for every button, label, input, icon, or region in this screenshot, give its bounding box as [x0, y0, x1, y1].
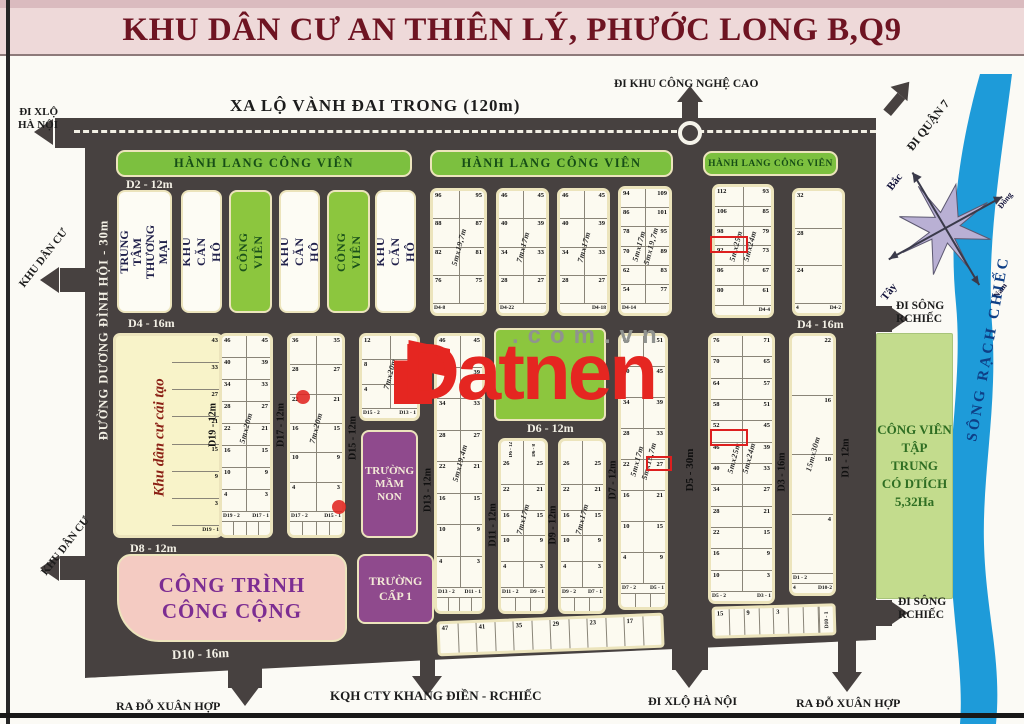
- pn: 10: [561, 536, 572, 546]
- plot-block-mb4: 464540393433282722211615109435mx19,4mD13…: [434, 333, 485, 614]
- pfl: D17 - 2: [290, 512, 309, 521]
- pn: 39: [655, 398, 666, 408]
- prow: 3433: [222, 379, 270, 401]
- prow: 86101: [621, 207, 669, 226]
- pn: 4: [561, 562, 568, 572]
- pn: 34: [437, 399, 448, 409]
- pcell: [516, 598, 531, 611]
- pn: 39: [762, 443, 773, 453]
- pn: 94: [621, 189, 632, 199]
- pfr: D17 - 1: [251, 512, 270, 521]
- hcell: 9: [744, 608, 760, 634]
- south-exit-stub-d1: [838, 636, 856, 674]
- pn: 85: [761, 207, 772, 217]
- prow: 9695: [433, 191, 484, 218]
- public-works-label: CÔNG TRÌNH CÔNG CỘNG: [159, 572, 306, 624]
- pfl: 4: [795, 304, 800, 313]
- pn: 4: [826, 515, 833, 525]
- pn: 3: [596, 562, 603, 572]
- pfr: [667, 304, 669, 313]
- duong-dinh-hoi-label: ĐƯỜNG DƯƠNG ĐÌNH HỘI - 30m: [97, 220, 112, 441]
- prow: 1015: [621, 521, 665, 552]
- psub: [501, 597, 545, 611]
- hcell: [804, 607, 820, 633]
- pn: 36: [290, 336, 301, 346]
- pcell: [621, 594, 636, 607]
- pn: 46: [222, 336, 233, 346]
- district7-arrow-icon: [881, 91, 909, 119]
- pn: [413, 360, 417, 362]
- pn: 40: [711, 464, 722, 474]
- hcell: 35: [513, 621, 533, 651]
- pn: 28: [222, 402, 233, 412]
- red-highlight-plot-1: [710, 236, 748, 253]
- park-corridor-3: HÀNH LANG CÔNG VIÊN: [703, 151, 838, 176]
- pfl: [715, 306, 717, 315]
- hn: 3: [776, 609, 779, 616]
- plot-block-mb5: D6 - 12D6 - 8262522211615109437mx17mD11 …: [498, 438, 548, 614]
- pn: 78: [621, 227, 632, 237]
- prow: 4045: [621, 366, 665, 397]
- prow: 8667: [715, 265, 771, 285]
- pn: 28: [499, 276, 510, 286]
- pn: 22: [501, 485, 512, 495]
- prow: 4039: [222, 357, 270, 379]
- pn: 9: [538, 536, 545, 546]
- prow: 43: [222, 489, 270, 511]
- pn: 21: [535, 485, 546, 495]
- pn: 28: [290, 365, 301, 375]
- pfl: D19 - 2: [222, 512, 241, 521]
- east-exit-stub-upper: [876, 306, 892, 332]
- pn: [838, 266, 842, 268]
- prow: 4651: [621, 336, 665, 366]
- pn: 16: [501, 511, 512, 521]
- south-exit-stub-d5: [672, 646, 708, 670]
- south-exit-stub-d13: [420, 658, 435, 678]
- pn: 61: [761, 286, 772, 296]
- pn: 28: [795, 229, 806, 239]
- pn: 40: [560, 219, 571, 229]
- pn: 45: [655, 367, 666, 377]
- prow: 4645: [560, 191, 607, 218]
- pn: 109: [655, 189, 669, 199]
- pn: 28: [621, 429, 632, 439]
- park-label: CÔNG VIÊN: [334, 232, 364, 272]
- prow: 22: [792, 336, 833, 395]
- pfoot: D4-18: [560, 303, 607, 313]
- pn: 87: [474, 219, 485, 229]
- renovation-area-label-wrap: Khu dân cư cải tạo: [130, 345, 190, 530]
- prow: 8061: [715, 285, 771, 305]
- red-highlight-plot-2: [710, 429, 748, 446]
- road-d15-label: D15 - 12m: [348, 416, 359, 460]
- prow: 109: [222, 467, 270, 489]
- ring-road-west-end: [55, 118, 87, 148]
- pn: 76: [433, 276, 444, 286]
- pn: 46: [437, 336, 448, 346]
- road-d11-label: D11 - 12m: [488, 503, 499, 546]
- pn: 15: [260, 446, 271, 456]
- pfoot: 4D10-2: [792, 583, 833, 593]
- hcell: [759, 608, 775, 634]
- pn: 16: [561, 511, 572, 521]
- pn: 33: [597, 248, 608, 258]
- primary-school-block: TRƯỜNG CẤP 1: [357, 554, 434, 624]
- hcell: 17: [624, 616, 644, 646]
- hcell: [789, 607, 805, 633]
- pn: [413, 336, 417, 338]
- park-block-1: CÔNG VIÊN: [229, 190, 272, 313]
- pn: 46: [499, 191, 510, 201]
- pn: 9: [475, 525, 482, 535]
- pfoot: D1 - 2: [792, 573, 833, 583]
- pn: 96: [433, 191, 444, 201]
- pn: 80: [715, 286, 726, 296]
- pfl: D7 - 2: [621, 584, 637, 593]
- plot-block-mb6: 262522211615109437mx17mD9 - 2D7 - 1: [558, 438, 606, 614]
- pn: 62: [621, 266, 632, 276]
- prow: 6283: [621, 265, 669, 284]
- pn: 71: [762, 336, 773, 346]
- ptoprow: D6 - 12D6 - 8: [501, 441, 545, 459]
- pcell: [259, 522, 270, 535]
- hcell: [532, 620, 552, 650]
- ring-road-dashed-line: [74, 130, 876, 133]
- pcell: [531, 598, 545, 611]
- pn: 45: [597, 191, 608, 201]
- pn: 16: [823, 396, 834, 406]
- pn: 45: [260, 336, 271, 346]
- pcell: [437, 598, 449, 611]
- pcell: [317, 522, 330, 535]
- pn: 39: [472, 368, 483, 378]
- apartment-label: KHU CĂN HỘ: [375, 233, 416, 270]
- psub: [561, 597, 603, 611]
- pn: 8: [362, 360, 369, 370]
- plot-block-mb8: 7671706564575851524546394033342728212215…: [708, 333, 775, 604]
- pn: 40: [437, 368, 448, 378]
- kindergarten-block: TRƯỜNG MẦM NON: [361, 430, 418, 538]
- pn: 10: [823, 455, 834, 465]
- prow: 109: [290, 452, 342, 481]
- park-corridor-1: HÀNH LANG CÔNG VIÊN: [116, 150, 412, 177]
- vtx: D6 - 12: [509, 442, 514, 457]
- plot-block-mb1: 464540393433282722211615109435mx20mD19 -…: [219, 333, 273, 538]
- pn: 27: [472, 431, 483, 441]
- pn: 27: [536, 276, 547, 286]
- park-block-2: CÔNG VIÊN: [327, 190, 370, 313]
- hn: 15: [717, 610, 724, 617]
- pn: 95: [474, 191, 485, 201]
- pfoot: D15 - 2D13 - 1: [362, 408, 417, 418]
- pbody: 7671706564575851524546394033342728212215…: [711, 336, 772, 591]
- pn: 9: [658, 553, 665, 563]
- pn: 89: [659, 247, 670, 257]
- hn: 47: [442, 625, 449, 632]
- hcell: 41: [476, 622, 496, 652]
- pfr: [544, 304, 546, 313]
- pn: 22: [437, 462, 448, 472]
- hcell: [458, 623, 478, 653]
- apartment-label: KHU CĂN HỘ: [279, 233, 320, 270]
- pfl: D15 - 2: [362, 409, 381, 418]
- pn: 21: [593, 485, 604, 495]
- pcell: [575, 598, 589, 611]
- red-highlight-plot-3: [646, 456, 672, 471]
- pn: 45: [536, 191, 547, 201]
- exit-rach-chiec-lower-label: ĐI SÔNG RCHIẾC: [898, 596, 946, 622]
- prow: 11293: [715, 187, 771, 206]
- pn: 101: [655, 208, 669, 218]
- pn: 34: [499, 248, 510, 258]
- exit-hi-tech-label: ĐI KHU CÔNG NGHỆ CAO: [614, 78, 758, 90]
- frame-bottom-line: [0, 713, 1024, 718]
- pn: 10: [222, 468, 233, 478]
- pn: 9: [263, 468, 270, 478]
- road-d17-label: D17 - 12m: [276, 403, 287, 447]
- pn: 15: [593, 511, 604, 521]
- pn: 15: [332, 424, 343, 434]
- pn: 9: [596, 536, 603, 546]
- pn: [838, 229, 842, 231]
- hcell: [606, 617, 626, 647]
- pn: 64: [711, 379, 722, 389]
- pn: 21: [655, 491, 666, 501]
- pcell: [561, 598, 575, 611]
- prow: 2215: [711, 527, 772, 548]
- arrow-down-left-icon: [230, 686, 260, 706]
- ring-road-label: XA LỘ VÀNH ĐAI TRONG (120m): [230, 96, 520, 116]
- kindergarten-label: TRƯỜNG MẦM NON: [365, 465, 414, 504]
- prow: 94109: [621, 189, 669, 207]
- pfr: D5 - 1: [649, 584, 665, 593]
- pn: 40: [222, 358, 233, 368]
- pn: 33: [472, 399, 483, 409]
- pcell: [303, 522, 316, 535]
- pfoot: D7 - 2D5 - 1: [621, 583, 665, 593]
- pn: 33: [536, 248, 547, 258]
- arrow-down-d1-icon: [832, 672, 862, 692]
- pfoot: D19 - 2D17 - 1: [222, 511, 270, 521]
- pn: 16: [621, 491, 632, 501]
- prow: 4645: [437, 336, 482, 367]
- prow: 12: [362, 336, 417, 359]
- pn: 15: [655, 522, 666, 532]
- pn: 26: [561, 459, 572, 469]
- pn: 4: [290, 483, 297, 493]
- hcell: 3: [774, 608, 790, 634]
- pfoot: D13 - 2D11 - 1: [437, 587, 482, 597]
- pcell: [636, 594, 651, 607]
- pn: 3: [475, 557, 482, 567]
- red-marker-dot-2: [332, 500, 346, 514]
- prow: 1615: [437, 493, 482, 525]
- hn: 9: [746, 610, 749, 617]
- exit-khang-dien-label: KQH CTY KHANG ĐIỀN - RCHIẾC: [330, 688, 542, 704]
- title-bar: KHU DÂN CƯ AN THIÊN LÝ, PHƯỚC LONG B,Q9: [0, 0, 1024, 56]
- prow: 7671: [711, 336, 772, 356]
- exit-hanoi-left-label: ĐI XLỘ HÀ NỘI: [10, 106, 58, 132]
- title-bar-top-strip: [0, 0, 1024, 8]
- plot-block-mb3: 12847mx20mD15 - 2D13 - 1: [359, 333, 420, 421]
- pfoot: D4-14: [621, 303, 669, 313]
- pcell: [501, 598, 516, 611]
- pfr: D7 - 1: [587, 588, 603, 597]
- land-plot-map: KHU DÂN CƯ AN THIÊN LÝ, PHƯỚC LONG B,Q9 …: [0, 0, 1024, 724]
- pn: 3: [335, 483, 342, 493]
- pfr: D4-4: [758, 306, 771, 315]
- pn: 4: [222, 490, 229, 500]
- pn: 27: [597, 276, 608, 286]
- arrow-left-upper-icon: [40, 267, 59, 293]
- hcell: [495, 621, 515, 651]
- pn: 9: [335, 453, 342, 463]
- pfl: D1 - 2: [792, 574, 808, 583]
- pn: 83: [659, 266, 670, 276]
- frame-left-line: [6, 0, 10, 724]
- prow: 4645: [499, 191, 546, 218]
- road-d4-label-right: D4 - 16m: [797, 317, 844, 332]
- pn: 32: [795, 191, 806, 201]
- pfoot: D11 - 2D9 - 1: [501, 587, 545, 597]
- pfl: [560, 304, 562, 313]
- prow: 3427: [711, 484, 772, 505]
- prow: 5851: [711, 399, 772, 420]
- pn: 26: [501, 459, 512, 469]
- pfoot: 4D4-2: [795, 303, 842, 313]
- pfr: D3 - 1: [756, 592, 772, 601]
- pn: 12: [362, 336, 373, 346]
- apartment-block-2: KHU CĂN HỘ: [279, 190, 320, 313]
- pfr: D10-2: [817, 584, 833, 593]
- south-exit-stub-left: [228, 662, 262, 688]
- pfl: D4-22: [499, 304, 515, 313]
- pn: 34: [560, 248, 571, 258]
- pn: 106: [715, 207, 729, 217]
- commercial-center-block: TRUNG TÂM THƯƠNG MẠI: [117, 190, 172, 313]
- pn: 82: [433, 248, 444, 258]
- prow: 4: [792, 514, 833, 574]
- pn: 22: [222, 424, 233, 434]
- pn: 46: [560, 191, 571, 201]
- ptop: [561, 441, 583, 459]
- prow: 7065: [711, 356, 772, 377]
- pfoot: D5 - 2D3 - 1: [711, 591, 772, 601]
- road-d13-label: D13 - 12m: [423, 468, 434, 512]
- prow: 3635: [290, 336, 342, 364]
- pn: 67: [761, 266, 772, 276]
- park-corridor-2: HÀNH LANG CÔNG VIÊN: [430, 150, 673, 177]
- pn: [838, 191, 842, 193]
- pn: 16: [711, 549, 722, 559]
- pn: [792, 396, 796, 398]
- hn: 17: [626, 618, 633, 625]
- pn: 34: [621, 398, 632, 408]
- pn: 10: [621, 522, 632, 532]
- prow: 10685: [715, 206, 771, 226]
- hcell: 23: [587, 618, 607, 648]
- pn: 16: [222, 446, 233, 456]
- pfl: D9 - 2: [561, 588, 577, 597]
- pn: 27: [260, 402, 271, 412]
- pcell: [472, 598, 483, 611]
- pn: 10: [711, 571, 722, 581]
- hcell: [730, 609, 746, 635]
- central-green-block: [494, 328, 606, 421]
- pfl: D13 - 2: [437, 588, 456, 597]
- pcell: [651, 594, 665, 607]
- prow: 1615: [222, 445, 270, 467]
- hcell: [569, 619, 589, 649]
- pfoot: D4-4: [715, 305, 771, 315]
- prow: 43: [501, 561, 545, 587]
- road-d2-label: D2 - 12m: [126, 177, 173, 192]
- pn: 86: [621, 208, 632, 218]
- pn: 75: [474, 276, 485, 286]
- pcell: [290, 522, 303, 535]
- road-d19-label: D19 - 12m: [208, 403, 219, 447]
- pbody: 94109861017895708962835477: [621, 189, 669, 303]
- pn: [792, 455, 796, 457]
- pn: 24: [795, 266, 806, 276]
- pn: 28: [711, 507, 722, 517]
- road-d8-label: D8 - 12m: [130, 541, 177, 556]
- west-exit-stub-lower: [60, 556, 86, 580]
- pn: 76: [711, 336, 722, 346]
- prow: 109: [437, 524, 482, 556]
- prow: 43: [437, 556, 482, 588]
- prow: 2821: [711, 506, 772, 527]
- pbody: 322824: [795, 191, 842, 303]
- red-marker-dot-1: [296, 390, 310, 404]
- prow: 103: [711, 570, 772, 591]
- pcell: [234, 522, 246, 535]
- pn: 28: [437, 431, 448, 441]
- renovation-area-label: Khu dân cư cải tạo: [152, 378, 169, 496]
- prow: 109: [501, 535, 545, 561]
- pn: 81: [474, 248, 485, 258]
- pn: [172, 336, 176, 338]
- pcell: [590, 598, 603, 611]
- pn: 40: [621, 367, 632, 377]
- pn: 35: [332, 336, 343, 346]
- pfl: D11 - 2: [501, 588, 520, 597]
- pn: 79: [761, 227, 772, 237]
- pn: 25: [535, 459, 546, 469]
- road-d3-label: D3 - 16m: [777, 453, 788, 492]
- prow: 4039: [437, 367, 482, 399]
- pn: 4: [437, 557, 444, 567]
- primary-school-label: TRƯỜNG CẤP 1: [369, 574, 423, 604]
- pn: 86: [715, 266, 726, 276]
- prow: 7675: [433, 275, 484, 303]
- road-d6-label: D6 - 12m: [527, 421, 574, 436]
- prow: 2827: [290, 364, 342, 393]
- apartment-block-1: KHU CĂN HỘ: [181, 190, 222, 313]
- pn: 28: [560, 276, 571, 286]
- hn: 29: [552, 621, 559, 628]
- pcell: [449, 598, 461, 611]
- pn: 33: [762, 464, 773, 474]
- pfr: [482, 304, 484, 313]
- pfr: D9 - 1: [529, 588, 545, 597]
- pn: 40: [499, 219, 510, 229]
- exit-do-xuan-hop-left-label: RA ĐỖ XUÂN HỢP: [116, 699, 220, 714]
- prow: 2827: [560, 275, 607, 303]
- pn: 16: [290, 424, 301, 434]
- road-d5-label: D5 - 30m: [684, 449, 696, 492]
